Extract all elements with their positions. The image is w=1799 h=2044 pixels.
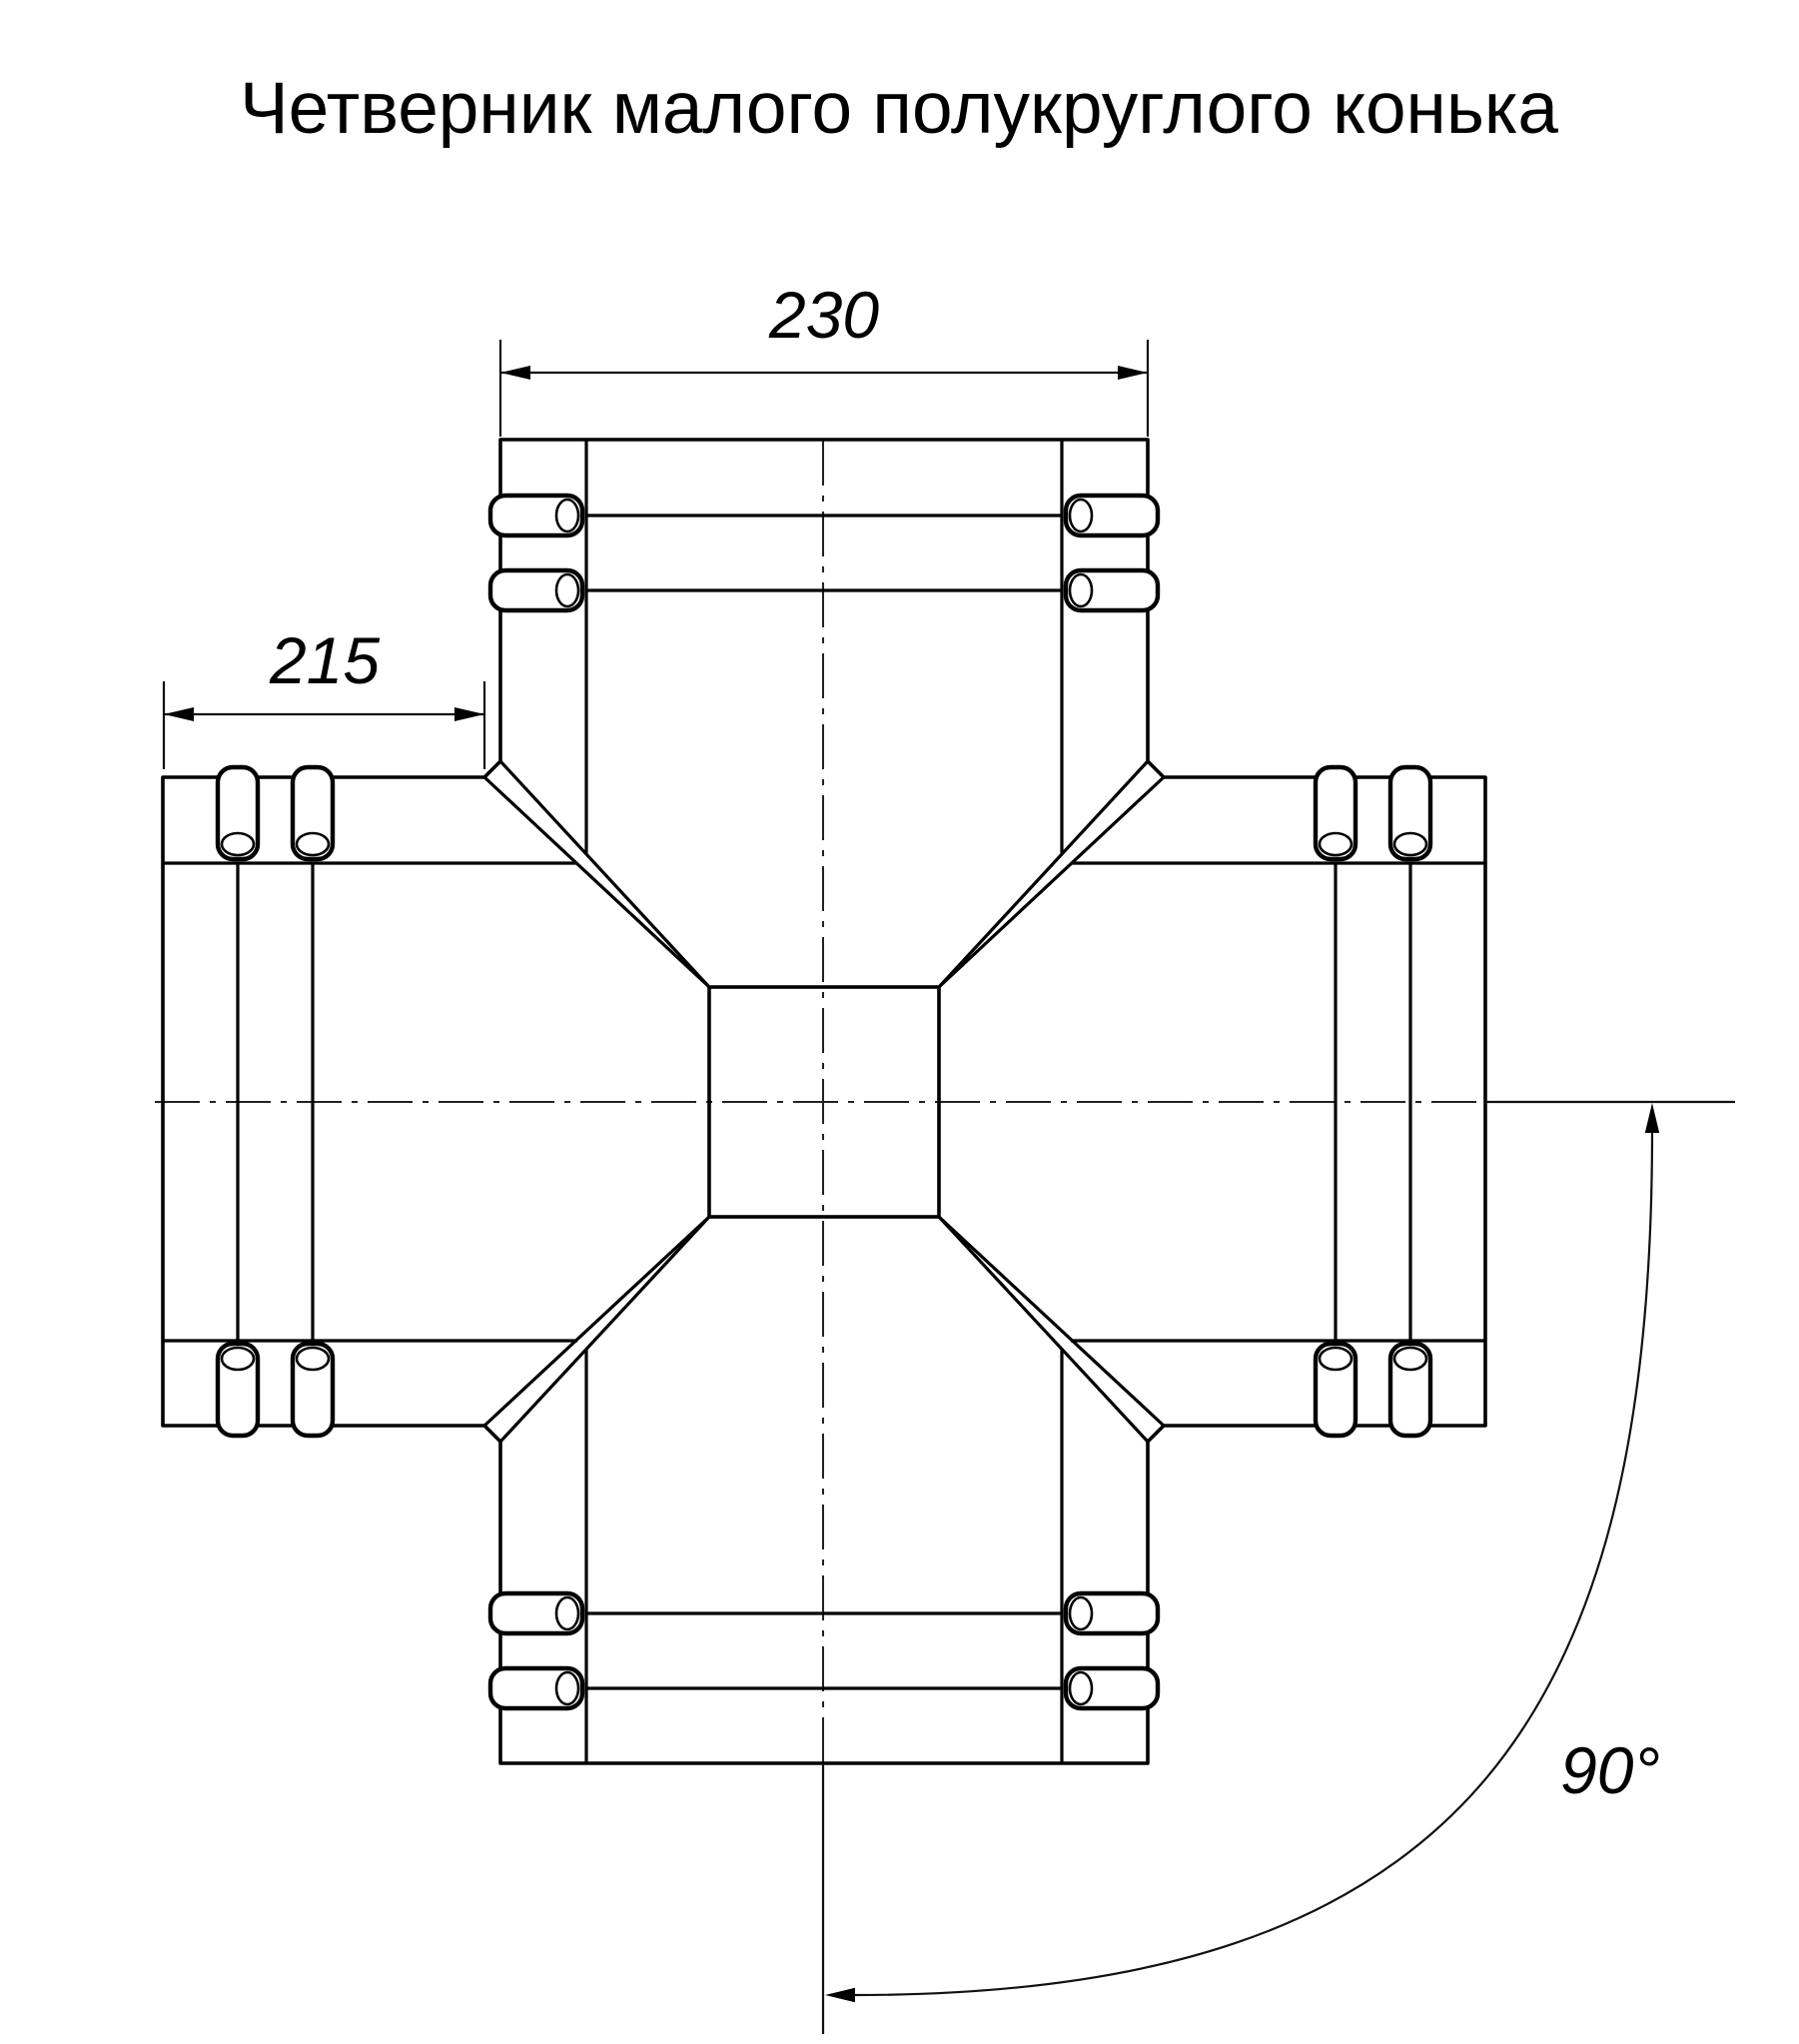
dimension-left-length: 215: [164, 623, 484, 769]
seam-bottom-left-inner: [500, 1217, 709, 1442]
drawing-title: Четверник малого полукруглого конька: [240, 68, 1558, 149]
angle-arc: [855, 1131, 1652, 1995]
clamp: [1390, 1344, 1430, 1436]
dimension-top-width: 230: [500, 278, 1148, 437]
clamp: [218, 1344, 258, 1436]
seam-bottom-left-outer: [484, 1217, 709, 1426]
dimension-arrowhead-right-icon: [454, 707, 484, 721]
angle-arrowhead-up-icon: [1645, 1103, 1659, 1133]
clamp: [1316, 1344, 1355, 1436]
angle-arrowhead-left-icon: [825, 1988, 855, 2002]
seam-bottom-right-outer: [939, 1217, 1164, 1426]
clamp: [1066, 570, 1158, 610]
clamp: [1316, 767, 1355, 859]
dimension-value-top-width: 230: [768, 278, 879, 352]
clamp: [1390, 767, 1430, 859]
seam-top-right-outer: [939, 777, 1164, 987]
clamp: [218, 767, 258, 859]
clamp: [490, 1593, 582, 1633]
seam-top-left-inner: [500, 761, 709, 987]
drawing-page: Четверник малого полукруглого конька: [0, 0, 1799, 2044]
clamp: [490, 570, 582, 610]
clamp: [1066, 1593, 1158, 1633]
seam-bottom-right-inner: [939, 1217, 1148, 1442]
dimension-arrowhead-left-icon: [500, 366, 530, 380]
dimension-arrowhead-right-icon: [1118, 366, 1148, 380]
seam-top-left-outer: [484, 777, 709, 987]
clamp: [293, 767, 333, 859]
clamp: [293, 1344, 333, 1436]
clamp: [490, 1668, 582, 1708]
angle-dimension: 90°: [823, 1102, 1735, 2034]
seam-top-right-inner: [939, 761, 1148, 987]
clamp: [1066, 1668, 1158, 1708]
clamp: [1066, 496, 1158, 535]
dimension-arrowhead-left-icon: [164, 707, 194, 721]
drawing-canvas: Четверник малого полукруглого конька: [0, 0, 1799, 2044]
clamp: [490, 496, 582, 535]
dimension-value-left-length: 215: [269, 623, 380, 697]
angle-value: 90°: [1560, 1733, 1660, 1807]
